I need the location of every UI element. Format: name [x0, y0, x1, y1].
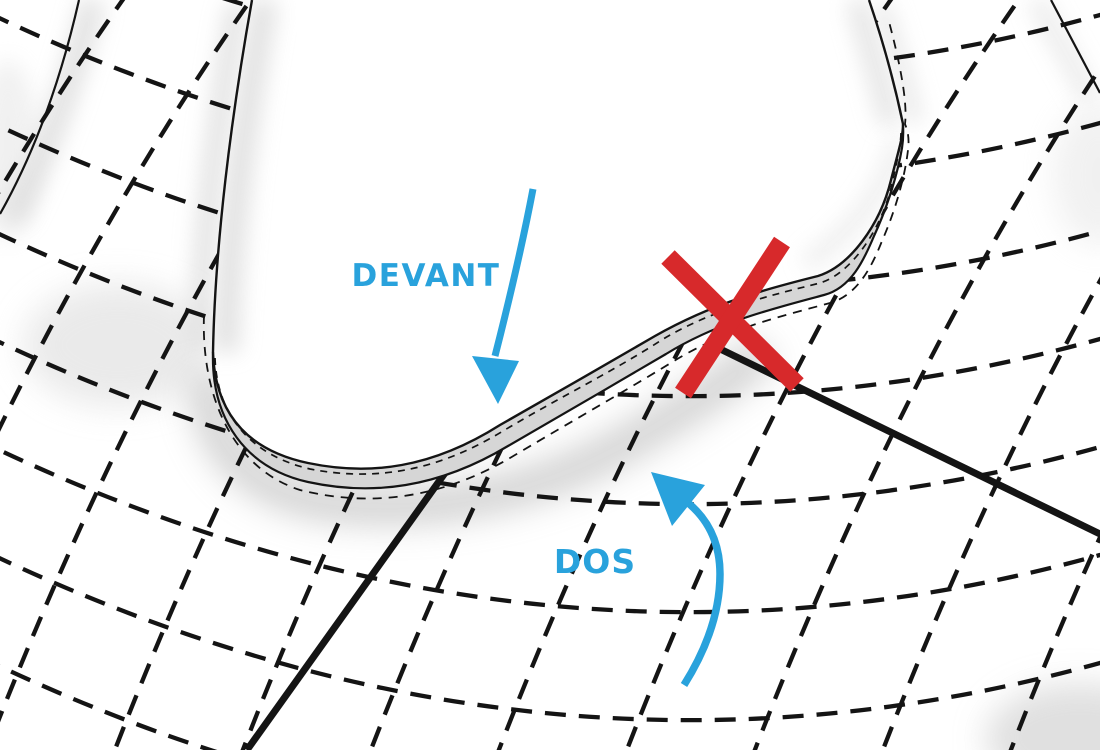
devant-label: DEVANT: [352, 258, 501, 294]
sewing-diagram: DEVANT DOS: [0, 0, 1100, 750]
diagram-canvas: DEVANT DOS: [0, 0, 1100, 750]
dos-label: DOS: [554, 542, 636, 581]
